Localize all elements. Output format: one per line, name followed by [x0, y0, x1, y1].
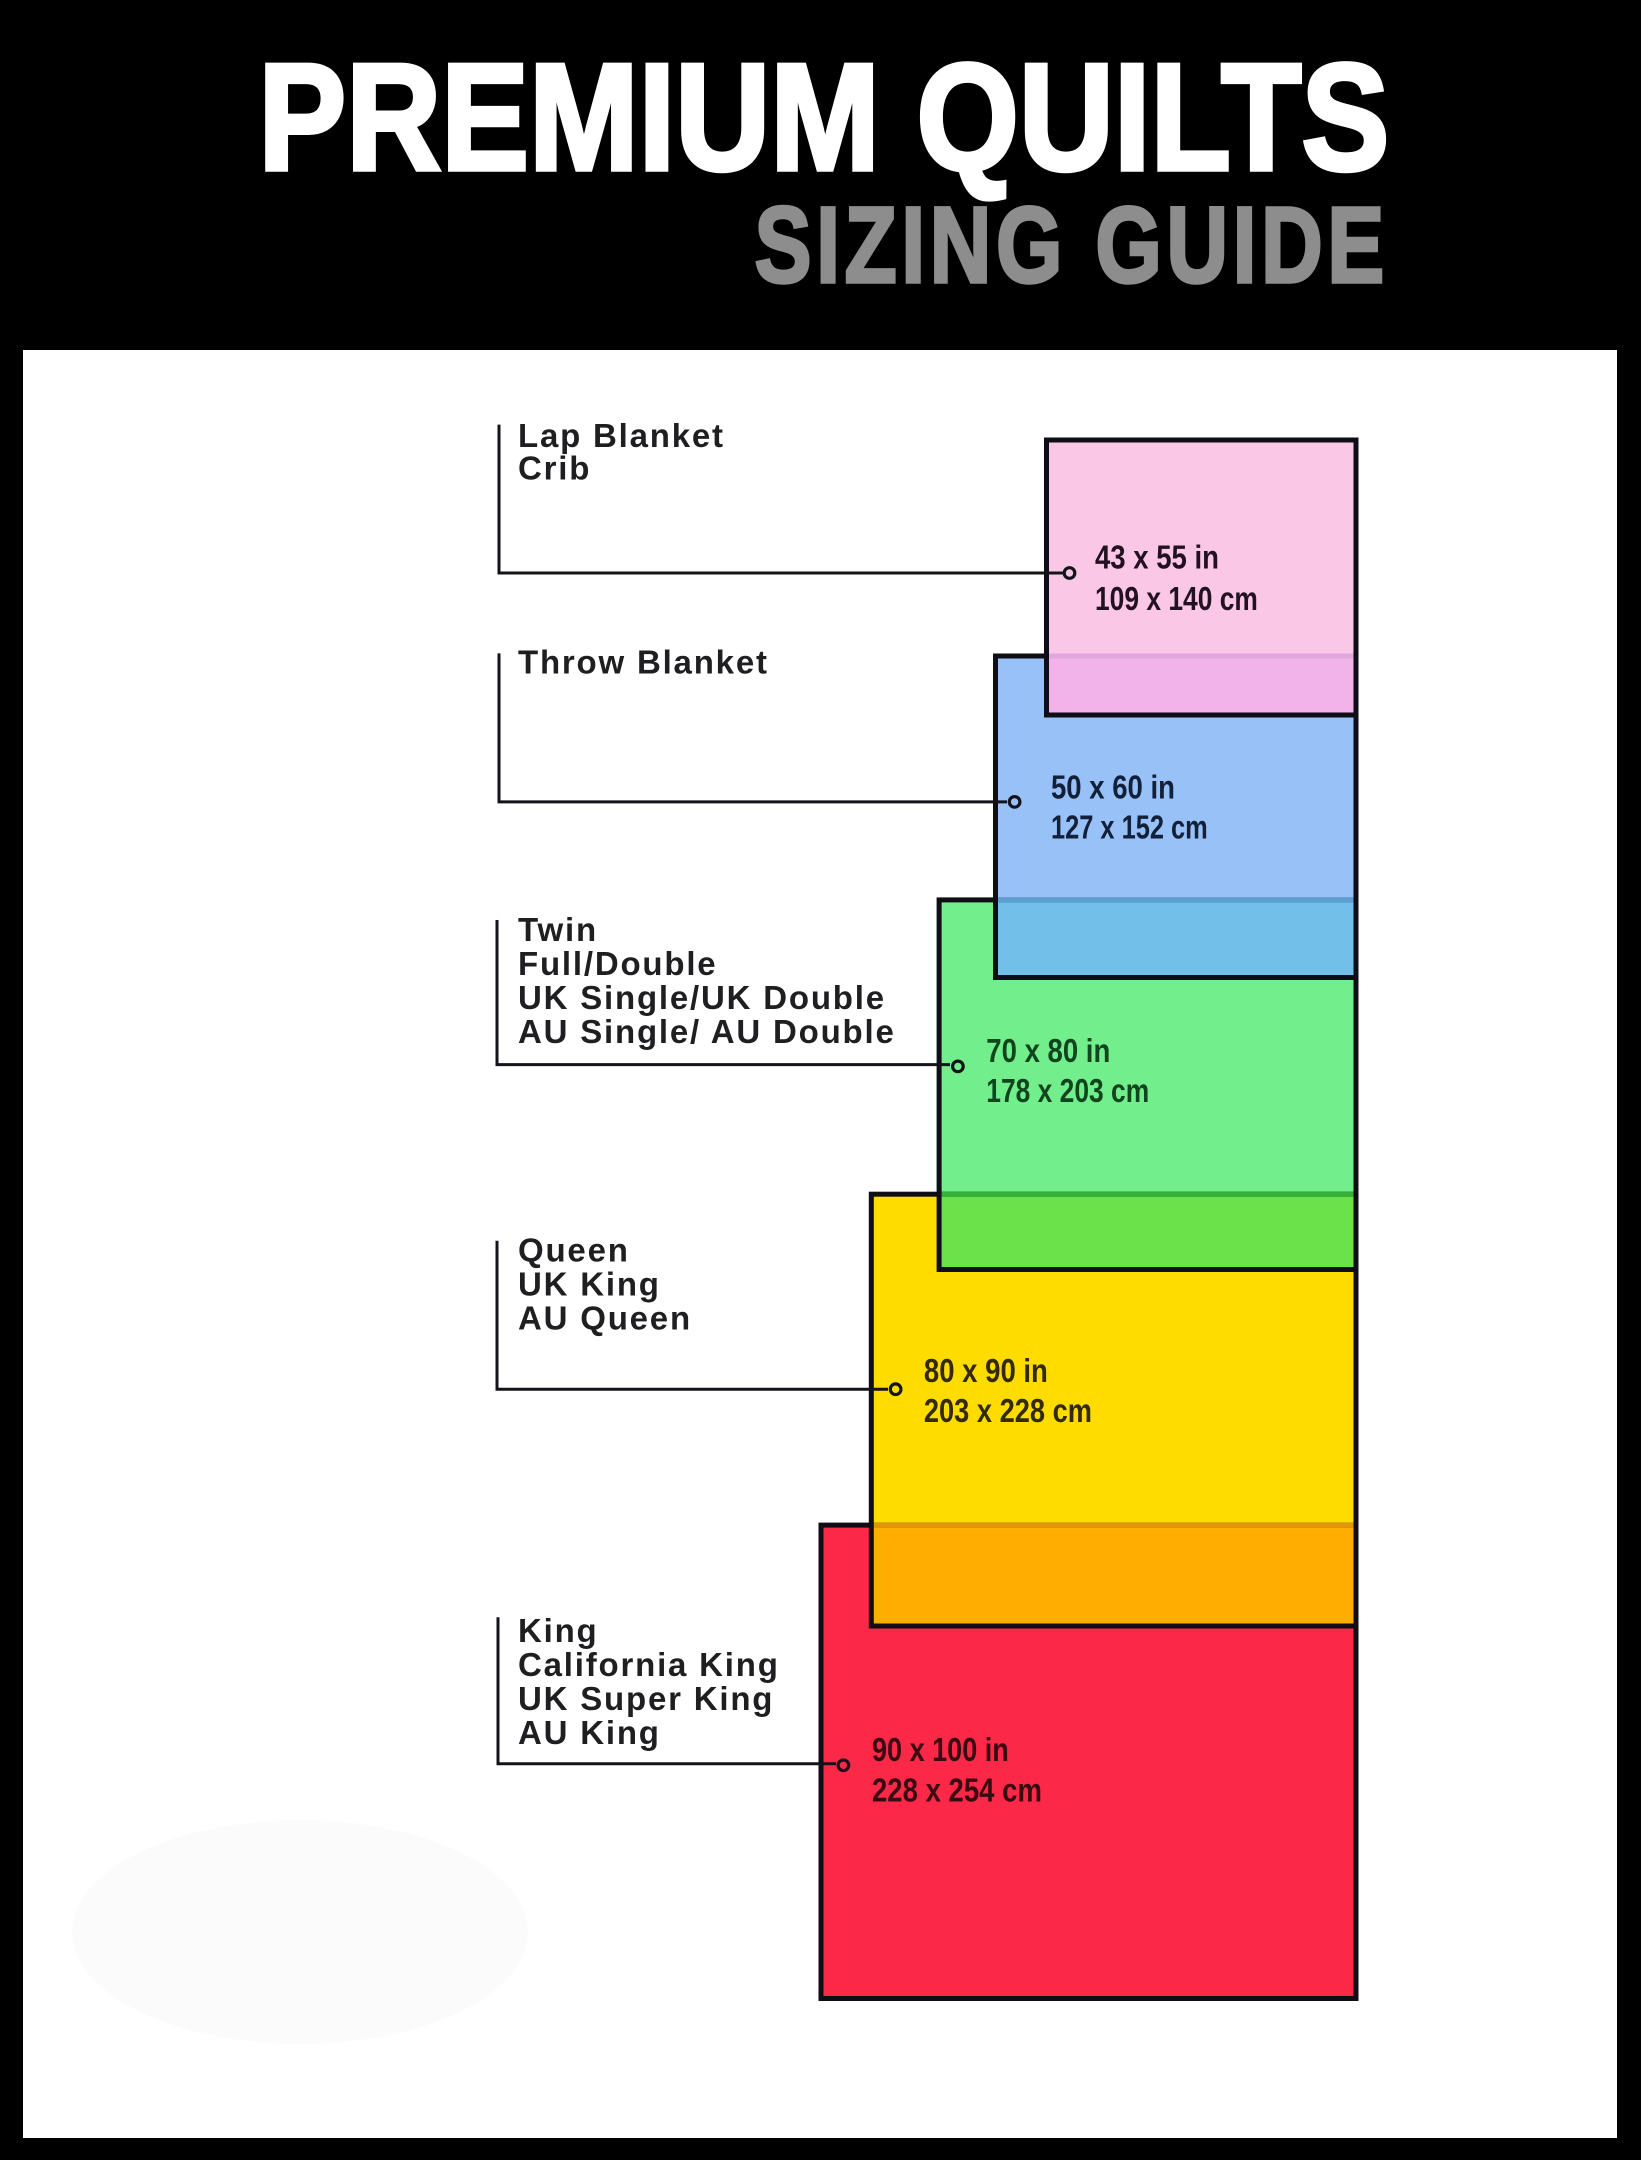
svg-text:UK Single/UK Double: UK Single/UK Double — [518, 979, 886, 1016]
svg-text:California King: California King — [518, 1646, 780, 1683]
svg-text:Full/Double: Full/Double — [518, 945, 717, 982]
svg-text:SIZING GUIDE: SIZING GUIDE — [755, 184, 1389, 305]
svg-text:PREMIUM QUILTS: PREMIUM QUILTS — [258, 33, 1389, 203]
svg-text:127 x 152 cm: 127 x 152 cm — [1051, 809, 1208, 846]
svg-text:228 x 254 cm: 228 x 254 cm — [872, 1772, 1042, 1809]
svg-text:Twin: Twin — [518, 911, 598, 948]
svg-text:80 x 90 in: 80 x 90 in — [924, 1353, 1048, 1390]
svg-text:50 x 60 in: 50 x 60 in — [1051, 769, 1175, 806]
svg-text:King: King — [518, 1612, 599, 1649]
svg-text:109 x 140 cm: 109 x 140 cm — [1095, 581, 1258, 617]
svg-text:AU King: AU King — [518, 1714, 661, 1751]
svg-text:90 x 100 in: 90 x 100 in — [872, 1732, 1009, 1768]
svg-text:UK King: UK King — [518, 1266, 661, 1303]
svg-text:70 x 80 in: 70 x 80 in — [986, 1033, 1110, 1070]
svg-text:Queen: Queen — [518, 1232, 630, 1269]
svg-text:178 x 203 cm: 178 x 203 cm — [986, 1073, 1149, 1109]
svg-text:43 x 55 in: 43 x 55 in — [1095, 539, 1219, 576]
svg-text:Crib: Crib — [518, 449, 591, 486]
svg-text:UK Super King: UK Super King — [518, 1680, 774, 1717]
svg-text:AU Queen: AU Queen — [518, 1300, 692, 1337]
svg-text:Throw Blanket: Throw Blanket — [518, 643, 769, 680]
svg-text:203 x 228 cm: 203 x 228 cm — [924, 1394, 1092, 1430]
svg-text:AU Single/ AU Double: AU Single/ AU Double — [518, 1013, 896, 1050]
